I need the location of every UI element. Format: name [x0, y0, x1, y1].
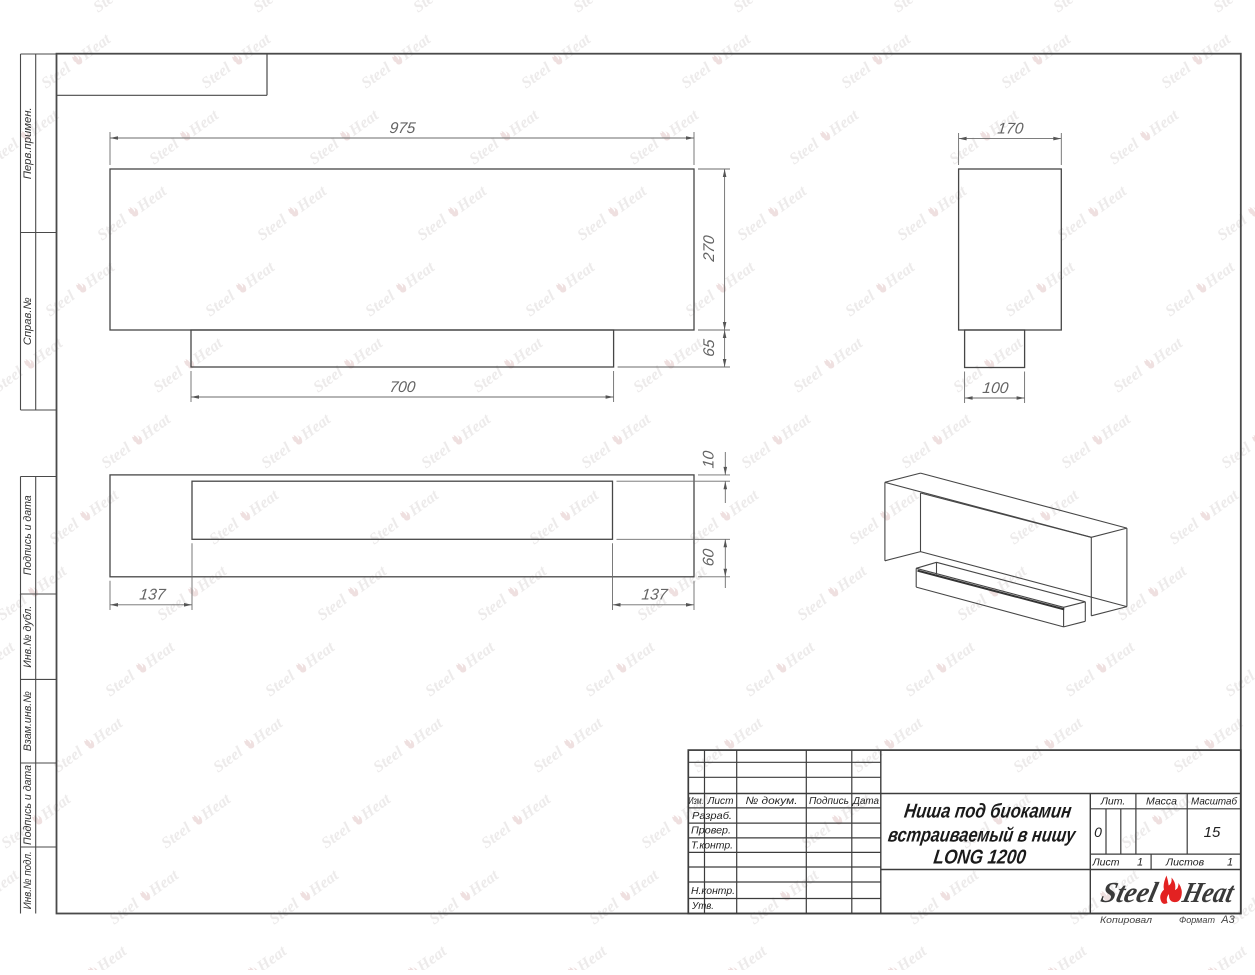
svg-text:700: 700 — [389, 379, 417, 396]
svg-text:Листов: Листов — [1165, 857, 1205, 869]
svg-text:Утв.: Утв. — [691, 900, 714, 912]
svg-text:Масса: Масса — [1146, 796, 1177, 808]
svg-text:Перв.примен.: Перв.примен. — [22, 107, 34, 179]
svg-text:Копировал: Копировал — [1100, 915, 1153, 926]
svg-text:Разраб.: Разраб. — [692, 810, 732, 822]
svg-text:Лист: Лист — [707, 795, 734, 807]
svg-text:Heat: Heat — [1179, 877, 1238, 909]
svg-text:Изм.: Изм. — [689, 795, 704, 807]
svg-text:Т.контр.: Т.контр. — [691, 840, 733, 852]
svg-text:Ниша под биокамин: Ниша под биокамин — [903, 801, 1073, 823]
svg-text:А3: А3 — [1220, 914, 1235, 926]
svg-text:0: 0 — [1094, 824, 1102, 840]
svg-text:Провер.: Провер. — [691, 825, 731, 837]
svg-text:Лит.: Лит. — [1100, 796, 1126, 808]
svg-text:137: 137 — [139, 587, 168, 604]
svg-text:15: 15 — [1204, 824, 1221, 841]
svg-text:Подпись и дата: Подпись и дата — [22, 765, 34, 845]
svg-text:Н.контр.: Н.контр. — [691, 885, 735, 897]
svg-text:Подпись: Подпись — [809, 795, 849, 807]
svg-text:LONG 1200: LONG 1200 — [932, 847, 1027, 869]
svg-text:1: 1 — [1137, 857, 1143, 869]
svg-text:170: 170 — [997, 121, 1025, 138]
svg-text:Масштаб: Масштаб — [1191, 796, 1238, 808]
svg-text:Инв.№ подл.: Инв.№ подл. — [22, 851, 34, 909]
svg-text:975: 975 — [389, 120, 417, 137]
svg-text:10: 10 — [701, 450, 718, 469]
svg-text:встраиваемый в нишу: встраиваемый в нишу — [887, 825, 1078, 847]
svg-text:Дата: Дата — [852, 795, 879, 807]
svg-text:60: 60 — [701, 548, 718, 567]
svg-text:1: 1 — [1227, 857, 1233, 869]
svg-text:Инв.№ дубл.: Инв.№ дубл. — [22, 606, 34, 668]
svg-text:Справ.№: Справ.№ — [22, 297, 34, 345]
svg-text:Лист: Лист — [1091, 857, 1119, 869]
svg-text:270: 270 — [701, 234, 718, 263]
svg-text:137: 137 — [641, 587, 670, 604]
svg-text:№ докум.: № докум. — [746, 795, 798, 807]
svg-text:Подпись и дата: Подпись и дата — [22, 495, 34, 575]
svg-text:Формат: Формат — [1179, 915, 1215, 926]
svg-text:Steel: Steel — [1098, 877, 1162, 909]
svg-text:Взам.инв.№: Взам.инв.№ — [22, 691, 34, 751]
svg-text:65: 65 — [701, 338, 718, 357]
svg-text:100: 100 — [982, 380, 1010, 397]
